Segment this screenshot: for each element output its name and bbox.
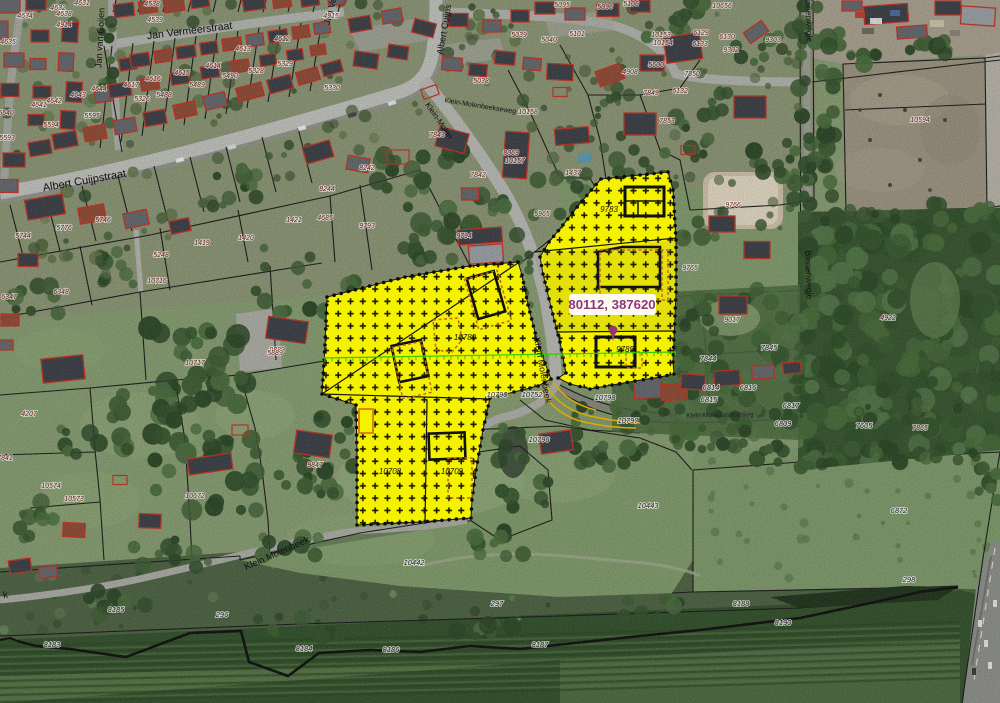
svg-text:1419: 1419 <box>194 240 210 247</box>
svg-text:7850: 7850 <box>684 71 700 78</box>
svg-text:9303: 9303 <box>765 37 781 44</box>
svg-text:5096: 5096 <box>597 4 613 11</box>
svg-text:8185: 8185 <box>108 605 126 614</box>
svg-text:4631: 4631 <box>74 0 90 7</box>
svg-text:10798: 10798 <box>595 393 617 402</box>
svg-text:5889: 5889 <box>267 350 283 357</box>
svg-text:10594: 10594 <box>910 117 930 124</box>
svg-text:10153: 10153 <box>651 32 671 39</box>
svg-text:297: 297 <box>490 599 504 608</box>
svg-text:5776: 5776 <box>56 225 72 232</box>
svg-text:5330: 5330 <box>324 85 340 92</box>
svg-text:298: 298 <box>902 575 916 584</box>
svg-text:10157: 10157 <box>505 158 526 165</box>
svg-text:10708: 10708 <box>379 467 402 476</box>
svg-text:1420: 1420 <box>238 235 254 242</box>
svg-text:5640: 5640 <box>0 110 14 117</box>
svg-text:4617: 4617 <box>123 82 140 89</box>
svg-text:6130: 6130 <box>719 34 735 41</box>
svg-text:6817: 6817 <box>783 401 801 410</box>
svg-text:4642: 4642 <box>46 98 62 105</box>
svg-text:9794: 9794 <box>456 233 472 240</box>
svg-text:10716: 10716 <box>147 278 167 285</box>
svg-text:9766: 9766 <box>725 202 741 209</box>
svg-text:10442: 10442 <box>404 558 426 567</box>
svg-text:4922: 4922 <box>880 315 896 322</box>
svg-text:9847: 9847 <box>307 462 324 469</box>
svg-text:5039: 5039 <box>511 32 527 39</box>
svg-text:1421: 1421 <box>286 217 302 224</box>
svg-text:8190: 8190 <box>775 618 793 627</box>
svg-text:10796: 10796 <box>529 435 551 444</box>
svg-text:4539: 4539 <box>147 17 163 24</box>
svg-text:5326: 5326 <box>134 96 150 103</box>
svg-text:10573: 10573 <box>64 496 84 503</box>
svg-text:5038: 5038 <box>473 78 489 85</box>
svg-text:8184: 8184 <box>296 644 313 653</box>
svg-text:8186: 8186 <box>383 645 401 654</box>
svg-text:4914: 4914 <box>56 22 72 29</box>
svg-text:4908: 4908 <box>622 69 638 76</box>
svg-text:4915: 4915 <box>323 13 339 20</box>
svg-text:4538: 4538 <box>144 1 160 8</box>
svg-text:6347: 6347 <box>1 294 18 301</box>
svg-text:8188: 8188 <box>733 599 751 608</box>
svg-text:5328: 5328 <box>248 68 264 75</box>
svg-text:6814: 6814 <box>703 383 720 392</box>
svg-text:7841: 7841 <box>0 455 13 462</box>
svg-text:5746: 5746 <box>95 217 111 224</box>
svg-text:4615: 4615 <box>174 70 190 77</box>
svg-text:4634: 4634 <box>17 13 33 20</box>
svg-text:4643: 4643 <box>70 92 86 99</box>
svg-text:7843: 7843 <box>429 132 445 139</box>
svg-text:5329: 5329 <box>277 61 293 68</box>
svg-text:10709: 10709 <box>441 467 464 476</box>
svg-text:80112, 387620: 80112, 387620 <box>568 297 655 312</box>
svg-text:8187: 8187 <box>532 640 550 649</box>
svg-text:10672: 10672 <box>185 493 205 500</box>
svg-text:5488: 5488 <box>156 92 172 99</box>
svg-text:1437: 1437 <box>565 170 582 177</box>
svg-text:4614: 4614 <box>205 63 221 70</box>
svg-text:5744: 5744 <box>15 233 31 240</box>
svg-text:10752: 10752 <box>522 390 544 399</box>
svg-text:4638: 4638 <box>56 11 72 18</box>
svg-text:5106: 5106 <box>623 1 639 8</box>
svg-text:6872: 6872 <box>891 506 909 515</box>
svg-text:4616: 4616 <box>145 76 161 83</box>
svg-text:6809: 6809 <box>775 419 793 428</box>
svg-text:9785: 9785 <box>616 345 634 354</box>
svg-text:9302: 9302 <box>723 47 739 54</box>
svg-text:5593: 5593 <box>0 135 15 142</box>
svg-text:10717: 10717 <box>185 360 206 367</box>
svg-text:7865: 7865 <box>912 425 928 432</box>
svg-text:5965: 5965 <box>534 211 550 218</box>
svg-text:8069: 8069 <box>503 150 519 157</box>
svg-text:4644: 4644 <box>91 86 107 93</box>
svg-text:4632: 4632 <box>50 5 66 12</box>
svg-text:296: 296 <box>215 610 229 619</box>
svg-text:7845: 7845 <box>761 343 779 352</box>
svg-text:9793: 9793 <box>359 223 375 230</box>
svg-text:5040: 5040 <box>541 37 557 44</box>
svg-text:10154: 10154 <box>653 40 673 47</box>
svg-text:7849: 7849 <box>643 90 659 97</box>
svg-text:8183: 8183 <box>44 640 62 649</box>
svg-text:4207: 4207 <box>21 411 38 418</box>
svg-text:5248: 5248 <box>153 252 169 259</box>
svg-text:10656: 10656 <box>712 3 732 10</box>
svg-text:5489: 5489 <box>189 82 205 89</box>
svg-text:4613: 4613 <box>235 46 251 53</box>
svg-text:8242: 8242 <box>359 165 375 172</box>
svg-text:Binnenwegje: Binnenwegje <box>803 250 815 299</box>
svg-text:4685: 4685 <box>317 215 333 222</box>
svg-text:10790: 10790 <box>487 390 509 399</box>
svg-text:10158: 10158 <box>518 109 538 116</box>
svg-text:4641: 4641 <box>31 102 47 109</box>
svg-text:7844: 7844 <box>700 354 717 363</box>
svg-text:5594: 5594 <box>43 122 59 129</box>
svg-text:8244: 8244 <box>319 186 335 193</box>
svg-text:7853: 7853 <box>659 118 675 125</box>
svg-text:10443: 10443 <box>638 501 660 510</box>
svg-text:Klein-Molenbeekseweg: Klein-Molenbeekseweg <box>686 411 754 419</box>
svg-text:10574: 10574 <box>41 483 61 490</box>
svg-text:7842: 7842 <box>470 172 486 179</box>
svg-text:5595: 5595 <box>84 113 100 120</box>
svg-text:Binnenwegje: Binnenwegje <box>803 0 815 43</box>
svg-text:6133: 6133 <box>692 41 708 48</box>
svg-text:5095: 5095 <box>554 2 570 9</box>
svg-text:6132: 6132 <box>672 88 688 95</box>
svg-text:4612: 4612 <box>274 36 290 43</box>
svg-text:4635: 4635 <box>0 39 16 46</box>
svg-text:6816: 6816 <box>740 383 758 392</box>
svg-text:6129: 6129 <box>693 30 709 37</box>
svg-text:5101: 5101 <box>569 31 585 38</box>
svg-text:10789: 10789 <box>454 333 477 342</box>
svg-text:6815: 6815 <box>701 395 719 404</box>
svg-text:10797: 10797 <box>618 416 640 425</box>
svg-text:9783: 9783 <box>600 205 618 214</box>
svg-text:9765: 9765 <box>682 265 698 272</box>
svg-text:5490: 5490 <box>222 73 238 80</box>
svg-text:9017: 9017 <box>724 317 741 324</box>
svg-text:5600: 5600 <box>648 62 664 69</box>
svg-text:7605: 7605 <box>856 421 874 430</box>
svg-text:6348: 6348 <box>53 289 69 296</box>
